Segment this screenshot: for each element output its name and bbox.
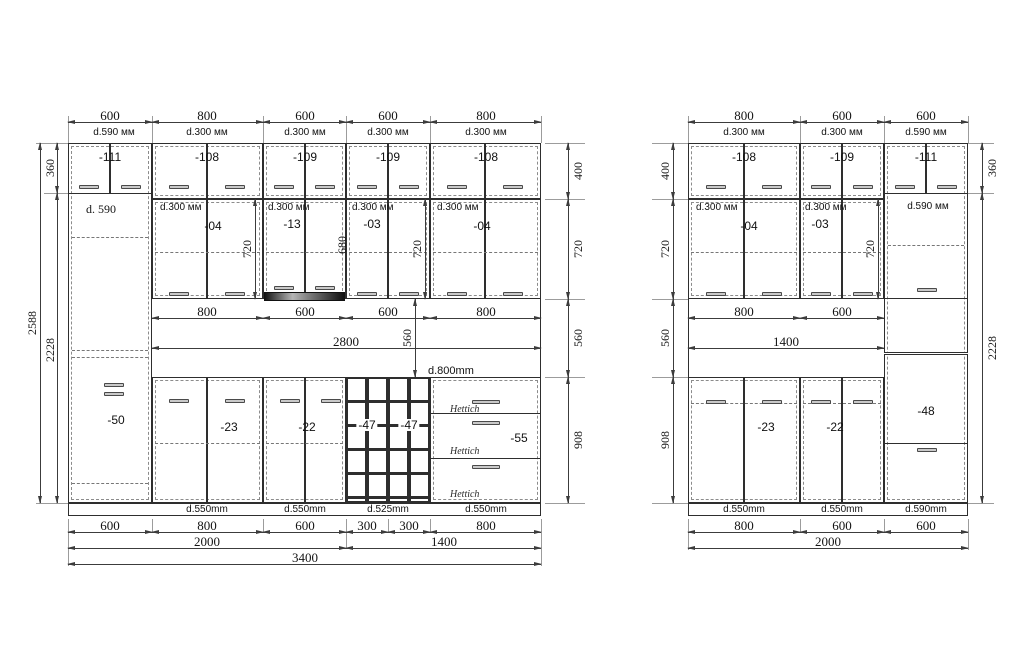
depth-label: d.800mm: [428, 366, 474, 377]
dimension-label: 1400: [431, 535, 457, 548]
door-handle: [321, 399, 341, 403]
shelf-line: [72, 483, 148, 484]
dimension-label: 600: [832, 109, 852, 122]
dimension-label: 800: [734, 519, 754, 532]
door-handle: [225, 399, 245, 403]
shelf-line: [691, 252, 797, 253]
shelf-line: [72, 237, 148, 238]
dimension-label: 720: [241, 240, 253, 258]
door-handle: [853, 292, 873, 296]
dimension-label: 600: [832, 519, 852, 532]
wall-edge-line: [540, 299, 541, 377]
depth-label: d.550mm: [465, 505, 507, 515]
dimension-label: 600: [295, 305, 315, 318]
dimension-label: 400: [572, 162, 584, 180]
cabinet-code: -108: [195, 151, 219, 163]
door-handle: [274, 286, 294, 290]
shelf-line: [888, 245, 964, 246]
cabinet-code: -108: [732, 151, 756, 163]
shelf-line: [72, 350, 148, 351]
door-handle: [169, 185, 189, 189]
depth-label: d.300 мм: [805, 203, 847, 213]
dimension-label: 300: [357, 519, 377, 532]
door-handle: [447, 292, 467, 296]
door-handle: [447, 185, 467, 189]
dimension-label: 360: [986, 159, 998, 177]
cabinet-code: -22: [298, 421, 315, 433]
dimension-line: [673, 143, 674, 199]
door-divider: [743, 377, 745, 503]
depth-label: d.300 мм: [352, 203, 394, 213]
door-handle: [937, 185, 957, 189]
dimension-line: [568, 199, 569, 299]
shelf-line: [433, 252, 538, 253]
dimension-label: 560: [572, 329, 584, 347]
dimension-line: [568, 143, 569, 199]
dimension-label: 560: [659, 329, 671, 347]
cooker-hood: [264, 292, 345, 301]
dimension-label: 2588: [26, 311, 38, 335]
door-handle: [315, 286, 335, 290]
door-handle: [853, 400, 873, 404]
hardware-brand-label: Hettich: [450, 446, 479, 457]
cabinet-code: -23: [757, 421, 774, 433]
dimension-label: 720: [864, 240, 876, 258]
door-handle: [762, 185, 782, 189]
cabinet-code: -111: [915, 151, 937, 163]
door-divider: [304, 377, 306, 503]
cabinet-code: -50: [107, 414, 124, 426]
depth-label: d.590 мм: [907, 202, 949, 212]
cabinet-code: -47: [356, 419, 377, 431]
cabinet-section-line: [884, 352, 968, 355]
door-handle: [225, 292, 245, 296]
dimension-label: 2228: [44, 338, 56, 362]
depth-label: d.550mm: [186, 505, 228, 515]
dimension-label: 2800: [333, 335, 359, 348]
dimension-label: 800: [476, 305, 496, 318]
dimension-label: 600: [295, 109, 315, 122]
wine-rack: [346, 377, 388, 503]
dimension-label: 800: [734, 305, 754, 318]
door-handle: [280, 399, 300, 403]
cabinet-code: -111: [99, 151, 121, 163]
depth-label: d.550mm: [284, 505, 326, 515]
shelf-line: [155, 443, 260, 444]
door-handle: [706, 185, 726, 189]
depth-label: d.300 мм: [821, 128, 863, 138]
shelf-line: [266, 443, 343, 444]
door-divider: [206, 199, 208, 299]
depth-label: d.300 мм: [160, 203, 202, 213]
dimension-line: [568, 377, 569, 503]
hardware-brand-label: Hettich: [450, 404, 479, 415]
door-handle: [503, 185, 523, 189]
dimension-label: 800: [734, 109, 754, 122]
cabinet-code: -108: [474, 151, 498, 163]
door-handle: [169, 292, 189, 296]
door-handle: [357, 292, 377, 296]
extension-tick: [68, 519, 69, 566]
dimension-line: [673, 199, 674, 299]
door-handle: [104, 392, 124, 396]
cabinet-code: -13: [283, 218, 300, 230]
door-handle: [399, 292, 419, 296]
door-handle: [399, 185, 419, 189]
depth-label: d.300 мм: [186, 128, 228, 138]
cabinet-section-line: [68, 193, 152, 194]
door-handle: [274, 185, 294, 189]
door-handle: [503, 292, 523, 296]
door-handle: [315, 185, 335, 189]
dimension-line: [982, 193, 983, 503]
dimension-label: 600: [916, 519, 936, 532]
depth-label: d.590 мм: [93, 128, 135, 138]
door-handle: [853, 185, 873, 189]
depth-label: d.300 мм: [696, 203, 738, 213]
cabinet-code: -03: [363, 218, 380, 230]
cabinet-section-line: [884, 443, 968, 444]
dimension-line: [415, 299, 416, 377]
depth-label: d.590mm: [905, 505, 947, 515]
cabinet-code: -04: [740, 220, 757, 232]
door-handle: [811, 185, 831, 189]
hardware-brand-label: Hettich: [450, 489, 479, 500]
depth-label: d.550mm: [821, 505, 863, 515]
door-handle: [811, 400, 831, 404]
wine-rack: [388, 377, 430, 503]
door-handle: [121, 185, 141, 189]
dimension-label: 1400: [773, 335, 799, 348]
drawer-handle: [472, 465, 500, 469]
dimension-line: [57, 143, 58, 193]
dimension-label: 720: [572, 240, 584, 258]
cabinet-code: -22: [826, 421, 843, 433]
dimension-label: 908: [572, 431, 584, 449]
door-handle: [811, 292, 831, 296]
dimension-line: [40, 143, 41, 503]
dimension-label: 720: [411, 240, 423, 258]
wall-edge-line: [688, 299, 689, 377]
dimension-label: 300: [399, 519, 419, 532]
dimension-line: [425, 199, 426, 299]
depth-label: d.300 мм: [465, 128, 507, 138]
dimension-label: 800: [476, 109, 496, 122]
cabinet-code: -23: [220, 421, 237, 433]
door-divider: [484, 199, 486, 299]
dimension-line: [878, 199, 879, 299]
dimension-label: 600: [100, 519, 120, 532]
cabinet-section-line: [884, 298, 968, 299]
depth-label: d.525mm: [367, 505, 409, 515]
door-handle: [225, 185, 245, 189]
dimension-label: 720: [659, 240, 671, 258]
cabinet-code: -47: [398, 419, 419, 431]
door-divider: [743, 199, 745, 299]
depth-label: d.300 мм: [284, 128, 326, 138]
door-handle: [169, 399, 189, 403]
cabinet-code: -03: [811, 218, 828, 230]
depth-label: d.300 мм: [367, 128, 409, 138]
dimension-label: 600: [100, 109, 120, 122]
door-handle: [79, 185, 99, 189]
depth-label: d.300 мм: [268, 203, 310, 213]
dimension-line: [568, 299, 569, 377]
dimension-label: 3400: [292, 551, 318, 564]
door-divider: [841, 199, 843, 299]
dimension-label: 2000: [194, 535, 220, 548]
dimension-label: 600: [378, 305, 398, 318]
dimension-label: 360: [44, 159, 56, 177]
door-handle: [357, 185, 377, 189]
dimension-line: [673, 377, 674, 503]
drawer-line: [430, 458, 541, 459]
cabinet-code: -109: [293, 151, 317, 163]
dimension-line: [673, 299, 674, 377]
door-handle: [762, 292, 782, 296]
depth-label: d.550mm: [723, 505, 765, 515]
shelf-line: [266, 252, 343, 253]
cabinet-code: -55: [510, 432, 527, 444]
dimension-line: [982, 143, 983, 193]
cabinet-code: -04: [473, 220, 490, 232]
door-handle: [104, 383, 124, 387]
dimension-label: 600: [378, 109, 398, 122]
door-handle: [917, 448, 937, 452]
dimension-label: 800: [197, 519, 217, 532]
dimension-line: [255, 199, 256, 299]
extension-tick: [346, 519, 347, 549]
dimension-label: 800: [197, 109, 217, 122]
kitchen-elevation-drawing: 600 800 600 600 800 d.590 мм d.300 мм d.…: [0, 0, 1024, 654]
cabinet-code: -48: [917, 405, 934, 417]
door-divider: [841, 377, 843, 503]
door-handle: [762, 400, 782, 404]
tall-cabinet: [68, 143, 152, 503]
depth-label: d.300 мм: [723, 128, 765, 138]
dimension-label: 400: [659, 162, 671, 180]
dimension-label: 908: [659, 431, 671, 449]
dimension-line: [57, 193, 58, 503]
door-divider: [304, 199, 306, 293]
cabinet-code: -109: [376, 151, 400, 163]
door-divider: [206, 377, 208, 503]
door-handle: [706, 400, 726, 404]
door-handle: [895, 185, 915, 189]
dimension-label: 2228: [986, 336, 998, 360]
drawer-handle: [472, 421, 500, 425]
dimension-label: 2000: [815, 535, 841, 548]
door-handle: [706, 292, 726, 296]
depth-label: d.590 мм: [905, 128, 947, 138]
extension-tick: [541, 519, 542, 566]
shelf-line: [72, 357, 148, 358]
cabinet-code: -04: [204, 220, 221, 232]
depth-label: d. 590: [86, 202, 116, 217]
cabinet-section-line: [884, 193, 968, 194]
dimension-label: 600: [916, 109, 936, 122]
door-divider: [387, 199, 389, 299]
drawer-line: [430, 413, 541, 414]
door-handle: [917, 288, 937, 292]
dimension-label: 600: [832, 305, 852, 318]
dimension-label: 800: [476, 519, 496, 532]
dimension-label: 560: [401, 329, 413, 347]
depth-label: d.300 мм: [437, 203, 479, 213]
dimension-label: 800: [197, 305, 217, 318]
dimension-label: 600: [295, 519, 315, 532]
cabinet-code: -109: [830, 151, 854, 163]
